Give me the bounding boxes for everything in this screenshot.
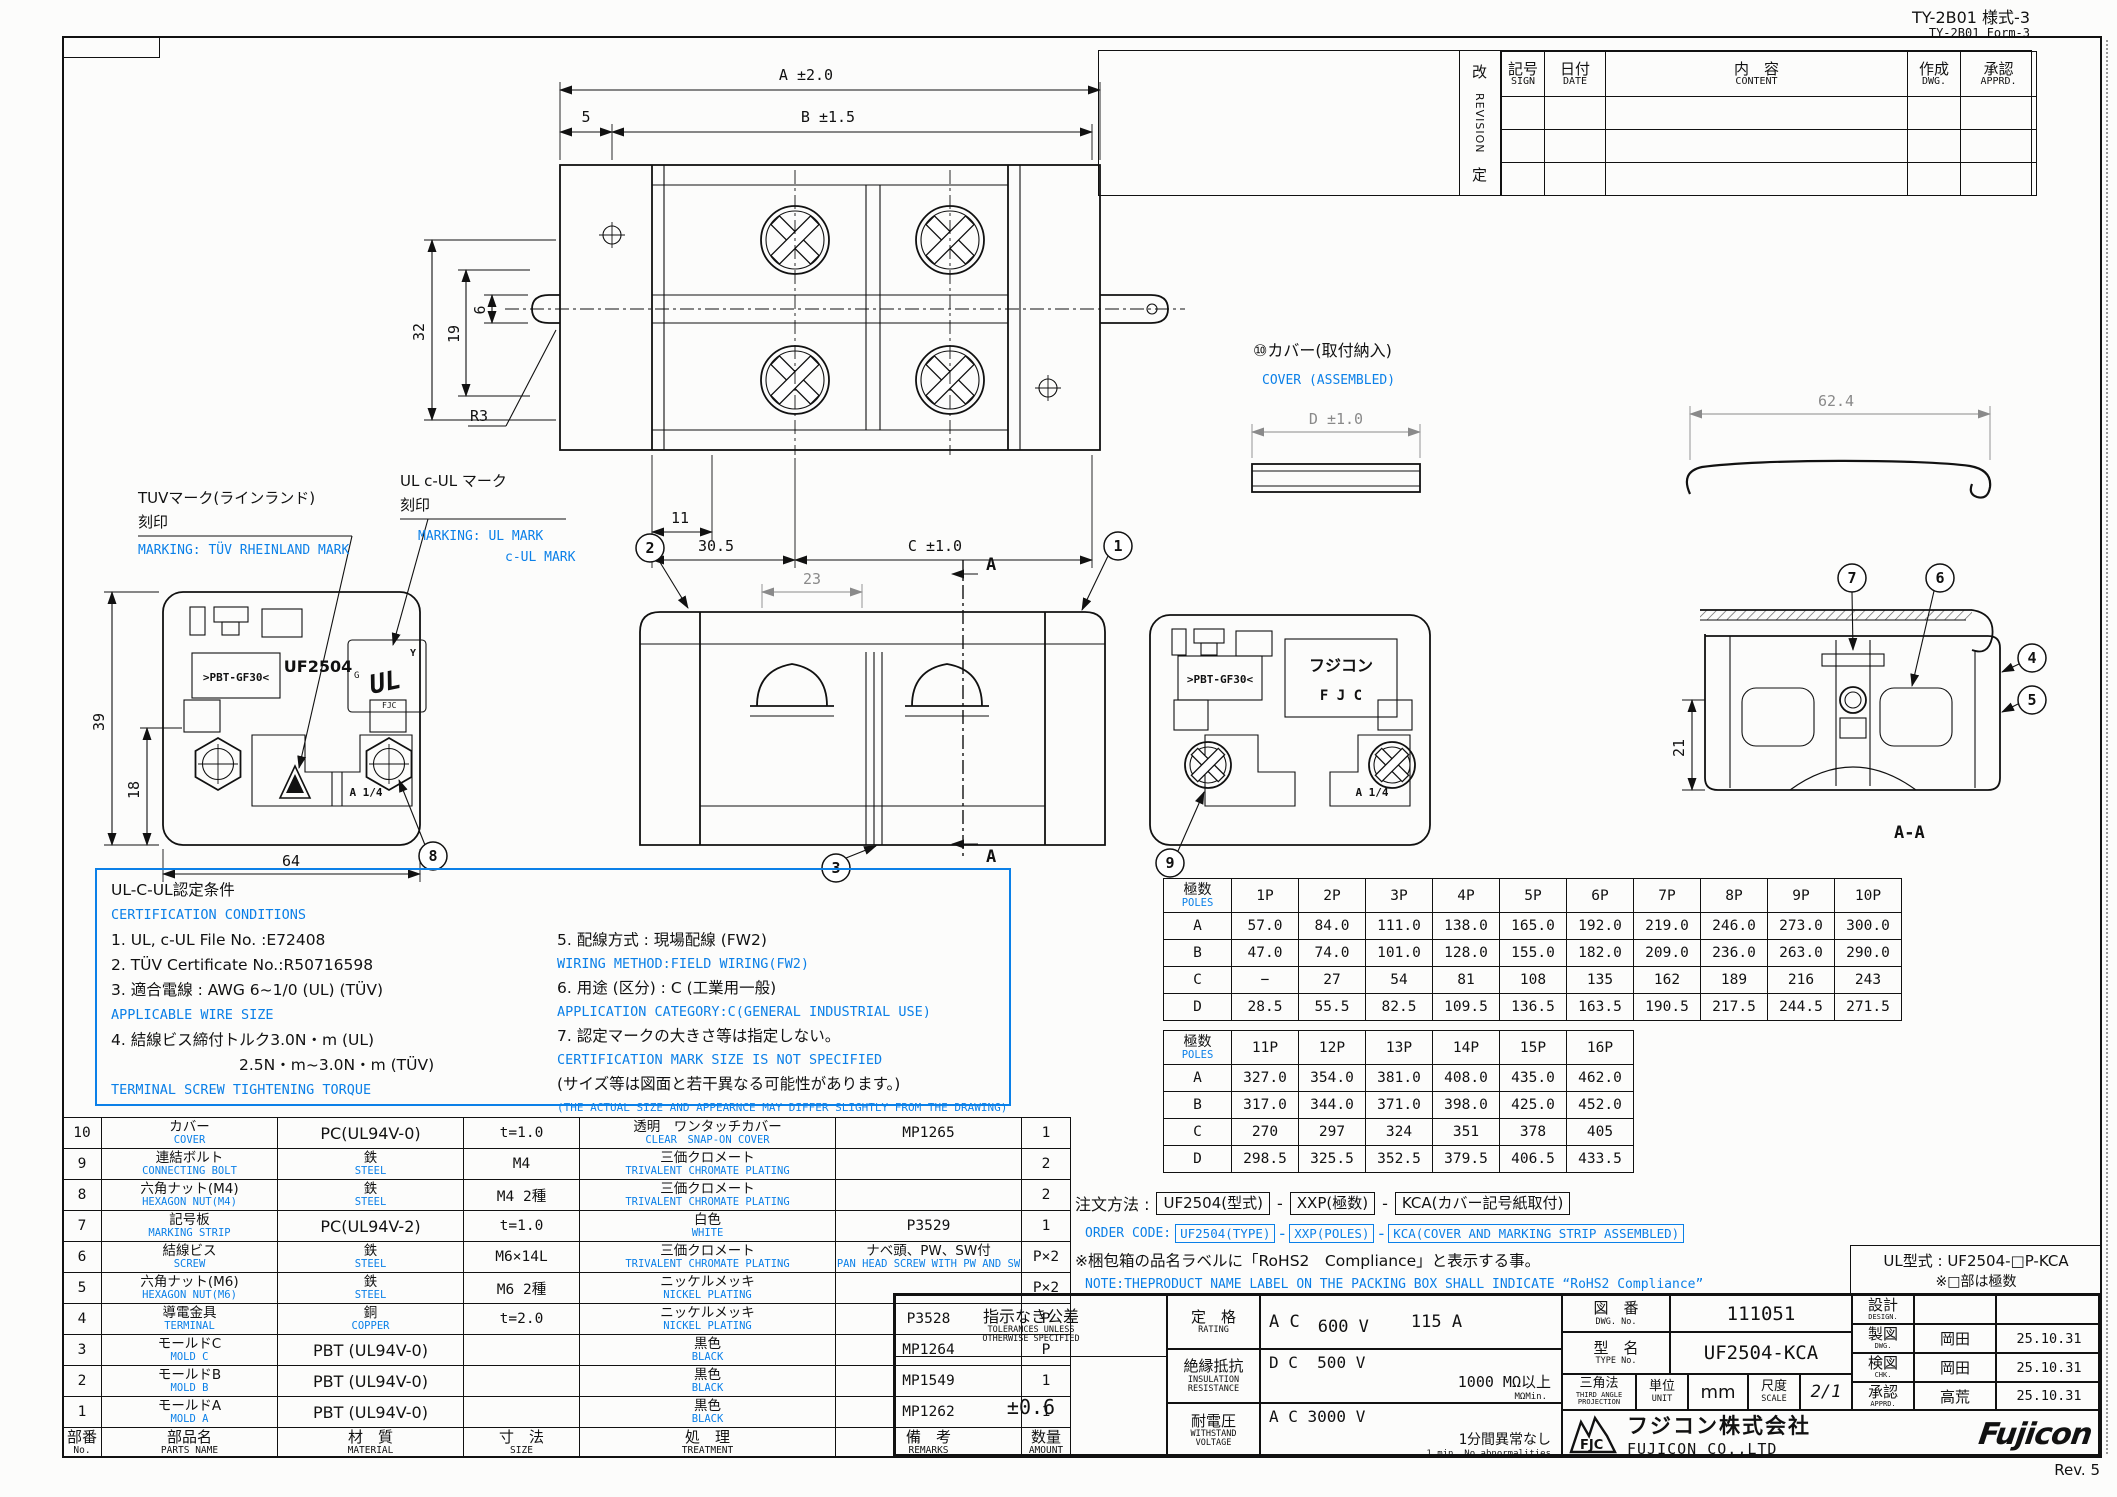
withstand-value: A C 3000 V 1分間異常なし 1 min. No abnormaliti… [1260, 1403, 1562, 1458]
order-box-cover: KCA(カバー記号紙取付) [1395, 1192, 1570, 1215]
cert-line: 2.5N・m~3.0N・m (TÜV) [111, 1053, 434, 1078]
dwgno-value: 111051 [1670, 1295, 1852, 1332]
parts-cell: 導電金具TERMINAL [102, 1304, 278, 1335]
certification-box: UL-C-UL認定条件 CERTIFICATION CONDITIONS1. U… [95, 868, 1011, 1106]
parts-cell: 鉄STEEL [278, 1242, 464, 1273]
cert-line: 1. UL, c-UL File No. :E72408 [111, 928, 434, 953]
balloon-7: 7 [1838, 564, 1866, 650]
parts-header-cell: 部品名PARTS NAME [102, 1428, 278, 1457]
dim-C: C ±1.0 [908, 537, 962, 555]
svg-text:FJC: FJC [382, 701, 397, 710]
sign-row: 製図DWG.岡田25.10.31 [1852, 1324, 2102, 1353]
parts-row: 10カバーCOVERPC(UL94V-0)t=1.0透明 ワンタッチカバーCLE… [63, 1118, 1071, 1149]
svg-text:4: 4 [2027, 649, 2036, 667]
scale-label: 尺度SCALE [1748, 1374, 1800, 1410]
section-label: A-A [1894, 823, 1925, 843]
dim-23: 23 [803, 570, 821, 588]
parts-cell: 6 [63, 1242, 102, 1273]
tuv-label-en: MARKING: TÜV RHEINLAND MARK [138, 541, 349, 558]
parts-cell [464, 1335, 580, 1366]
dwgno-label: 図 番DWG. No. [1562, 1295, 1670, 1332]
parts-header-cell: 材 質MATERIAL [278, 1428, 464, 1457]
title-block: 指示なき公差 TOLERANCES UNLESS OTHERWISE SPECI… [893, 1293, 2100, 1456]
parts-cell: PBT (UL94V-0) [278, 1366, 464, 1397]
dim-19: 19 [445, 325, 463, 343]
company-cell: FJC フジコン株式会社 FUJICON CO.,LTD Fujicon [1562, 1410, 2102, 1458]
parts-cell: MP1265 [836, 1118, 1022, 1149]
order-method-en: ORDER CODE: UF2504(TYPE)- XXP(POLES)- KC… [1085, 1224, 1684, 1243]
parts-cell: M6×14L [464, 1242, 580, 1273]
terminal-dome [750, 664, 834, 716]
mounting-hole [599, 222, 625, 248]
parts-cell: 4 [63, 1304, 102, 1335]
parts-row: 7記号板MARKING STRIPPC(UL94V-2)t=1.0白色WHITE… [63, 1211, 1071, 1242]
poles-col: 16P [1567, 1031, 1634, 1065]
section-arrow-bottom: A [986, 847, 996, 867]
section-view-aa: 21 A-A 7 6 4 5 [1670, 564, 2046, 843]
balloon-5: 5 [2002, 686, 2046, 714]
parts-cell: 8 [63, 1180, 102, 1211]
poles-row: B47.074.0101.0128.0155.0182.0209.0236.02… [1164, 940, 1902, 967]
dim-R3: R3 [470, 407, 488, 425]
parts-cell: 黒色BLACK [580, 1397, 836, 1428]
ul-label-en2: c-UL MARK [505, 550, 576, 565]
parts-cell: 2 [1022, 1149, 1071, 1180]
drawing-sheet: TY-2B01 様式-3 TY-2B01 Form-3 Rev. 5 改 REV… [0, 0, 2117, 1497]
terminal-dome [905, 664, 989, 716]
ul-type-note: ※□部は極数 [1936, 1271, 2017, 1291]
parts-cell [836, 1149, 1022, 1180]
rating-label: 定 格RATING [1167, 1295, 1260, 1349]
typeno-label: 型 名TYPE No. [1562, 1332, 1670, 1374]
poles-row: D298.5325.5352.5379.5406.5433.5 [1164, 1146, 1634, 1173]
parts-cell: M4 2種 [464, 1180, 580, 1211]
rohs-note-en: NOTE:THEPRODUCT NAME LABEL ON THE PACKIN… [1085, 1277, 1703, 1292]
fujicon-brand-logo: Fujicon [1976, 1417, 2093, 1452]
cert-line: CERTIFICATION MARK SIZE IS NOT SPECIFIED [557, 1048, 1007, 1072]
a14-marking: A 1/4 [349, 786, 382, 799]
parts-cell: 透明 ワンタッチカバーCLEAR SNAP-ON COVER [580, 1118, 836, 1149]
rating-value: A C600 V115 A [1260, 1295, 1562, 1349]
cert-right-column: 5. 配線方式 : 現場配線 (FW2)WIRING METHOD:FIELD … [557, 928, 1007, 1120]
tolerance-cell: 指示なき公差 TOLERANCES UNLESS OTHERWISE SPECI… [895, 1295, 1167, 1458]
hex-nut [196, 738, 241, 790]
poles-row: A57.084.0111.0138.0165.0192.0219.0246.02… [1164, 913, 1902, 940]
parts-cell: 5 [63, 1273, 102, 1304]
svg-text:6: 6 [1935, 569, 1944, 587]
cert-line: 6. 用途 (区分) : C (工業用一般) [557, 976, 1007, 1000]
parts-cell: 結線ビスSCREW [102, 1242, 278, 1273]
sign-row: 設計DESIGN. [1852, 1295, 2102, 1324]
poles-col: 10P [1835, 879, 1902, 913]
parts-cell: 白色WHITE [580, 1211, 836, 1242]
company-jp: フジコン株式会社 [1627, 1410, 1811, 1440]
unit-value: mm [1688, 1374, 1748, 1410]
poles-col: 2P [1299, 879, 1366, 913]
dim-32: 32 [410, 323, 428, 341]
poles-row: C270297324351378405 [1164, 1119, 1634, 1146]
section-arrow-top: A [986, 555, 996, 575]
poles-row: D28.555.582.5109.5136.5163.5190.5217.524… [1164, 994, 1902, 1021]
parts-cell: 1 [1022, 1211, 1071, 1242]
insulation-label: 絶縁抵抗INSULATIONRESISTANCE [1167, 1349, 1260, 1403]
parts-cell [836, 1180, 1022, 1211]
parts-header-cell: 寸 法SIZE [464, 1428, 580, 1457]
parts-cell: ニッケルメッキNICKEL PLATING [580, 1304, 836, 1335]
cert-line: (サイズ等は図面と若干異なる可能性があります。) [557, 1072, 1007, 1096]
parts-cell: モールドBMOLD B [102, 1366, 278, 1397]
cert-line: 2. TÜV Certificate No.:R50716598 [111, 953, 434, 978]
order-box-poles: XXP(極数) [1290, 1192, 1375, 1215]
parts-cell: PC(UL94V-2) [278, 1211, 464, 1242]
parts-cell: 1 [63, 1397, 102, 1428]
cert-left-column: CERTIFICATION CONDITIONS1. UL, c-UL File… [111, 903, 434, 1103]
parts-cell: 鉄STEEL [278, 1180, 464, 1211]
cover-label-jp: ⑩カバー(取付納入) [1253, 341, 1392, 360]
parts-row: 8六角ナット(M4)HEXAGON NUT(M4)鉄STEELM4 2種三価クロ… [63, 1180, 1071, 1211]
parts-cell: M6 2種 [464, 1273, 580, 1304]
parts-cell: 記号板MARKING STRIP [102, 1211, 278, 1242]
balloon-2: 2 [636, 534, 688, 608]
poles-col: 11P [1232, 1031, 1299, 1065]
pbt-marking: >PBT-GF30< [203, 671, 270, 684]
sign-table: 設計DESIGN.製図DWG.岡田25.10.31検図CHK.岡田25.10.3… [1852, 1295, 2102, 1410]
parts-row: 6結線ビスSCREW鉄STEELM6×14L三価クロメートTRIVALENT C… [63, 1242, 1071, 1273]
cert-line: 7. 認定マークの大きさ等は指定しない。 [557, 1024, 1007, 1048]
cert-title: UL-C-UL認定条件 [111, 878, 434, 903]
parts-cell: カバーCOVER [102, 1118, 278, 1149]
parts-cell: 連結ボルトCONNECTING BOLT [102, 1149, 278, 1180]
svg-text:UL: UL [367, 665, 404, 701]
parts-cell: PBT (UL94V-0) [278, 1397, 464, 1428]
cover-label-en: COVER (ASSEMBLED) [1262, 373, 1395, 388]
dim-39: 39 [90, 713, 108, 731]
parts-cell: t=1.0 [464, 1118, 580, 1149]
parts-cell: 鉄STEEL [278, 1273, 464, 1304]
parts-cell: 銅COPPER [278, 1304, 464, 1335]
parts-cell: 3 [63, 1335, 102, 1366]
cert-line: TERMINAL SCREW TIGHTENING TORQUE [111, 1078, 434, 1103]
order-method-jp: 注文方法 : UF2504(型式)- XXP(極数)- KCA(カバー記号紙取付… [1075, 1191, 1570, 1215]
parts-cell: 10 [63, 1118, 102, 1149]
balloon-1: 1 [1082, 532, 1132, 610]
balloon-9: 9 [1156, 792, 1204, 877]
parts-cell: P3529 [836, 1211, 1022, 1242]
order-box-type: UF2504(型式) [1156, 1192, 1270, 1215]
poles-table-2: 極数POLES11P12P13P14P15P16PA327.0354.0381.… [1163, 1030, 1634, 1173]
parts-cell: M4 [464, 1149, 580, 1180]
poles-row: A327.0354.0381.0408.0435.0462.0 [1164, 1065, 1634, 1092]
mounting-hole [1035, 375, 1061, 401]
cover-profile-view: 62.4 [1687, 392, 1990, 498]
parts-cell: P×2 [1022, 1242, 1071, 1273]
parts-cell: PBT (UL94V-0) [278, 1335, 464, 1366]
balloon-4: 4 [2002, 644, 2046, 672]
dim-18: 18 [125, 781, 143, 799]
parts-cell: 9 [63, 1149, 102, 1180]
parts-cell [464, 1397, 580, 1428]
svg-text:G: G [354, 671, 359, 681]
parts-cell: モールドAMOLD A [102, 1397, 278, 1428]
front-view-marking: >PBT-GF30< UF2504 UL G Y FJC A 1/4 [90, 472, 576, 882]
dim-11: 11 [671, 509, 689, 527]
parts-cell: t=1.0 [464, 1211, 580, 1242]
tuv-label-jp1: TUVマーク(ラインランド) [137, 489, 315, 507]
poles-col: 8P [1701, 879, 1768, 913]
hex-nut [367, 738, 412, 790]
parts-cell: ナベ頭、PW、SW付PAN HEAD SCREW WITH PW AND SW [836, 1242, 1022, 1273]
parts-cell: 黒色BLACK [580, 1366, 836, 1397]
a14-marking: A 1/4 [1355, 786, 1388, 799]
parts-cell: 黒色BLACK [580, 1335, 836, 1366]
svg-text:7: 7 [1847, 569, 1856, 587]
poles-col: 3P [1366, 879, 1433, 913]
poles-header: 極数POLES [1164, 879, 1232, 913]
cert-line: APPLICATION CATEGORY:C(GENERAL INDUSTRIA… [557, 1000, 1007, 1024]
parts-cell: 1 [1022, 1118, 1071, 1149]
svg-text:5: 5 [2027, 691, 2036, 709]
cert-line: 5. 配線方式 : 現場配線 (FW2) [557, 928, 1007, 952]
withstand-label: 耐電圧WITHSTANDVOLTAGE [1167, 1403, 1260, 1458]
insulation-value: D C 500 V 1000 MΩ以上 MΩMin. [1260, 1349, 1562, 1403]
poles-col: 14P [1433, 1031, 1500, 1065]
cover-side-view: D ±1.0 [1252, 410, 1420, 492]
type-marking: UF2504 [284, 657, 352, 676]
cert-line: 3. 適合電線 : AWG 6~1/0 (UL) (TÜV) [111, 978, 434, 1003]
parts-cell: 三価クロメートTRIVALENT CHROMATE PLATING [580, 1149, 836, 1180]
ul-label-jp2: 刻印 [400, 496, 430, 514]
tolerance-value: ±0.6 [896, 1357, 1166, 1457]
poles-col: 4P [1433, 879, 1500, 913]
parts-cell: 三価クロメートTRIVALENT CHROMATE PLATING [580, 1242, 836, 1273]
dim-A: A ±2.0 [779, 66, 833, 84]
parts-cell: 7 [63, 1211, 102, 1242]
parts-cell: 2 [1022, 1180, 1071, 1211]
company-en: FUJICON CO.,LTD [1627, 1440, 1811, 1458]
sign-row: 検図CHK.岡田25.10.31 [1852, 1353, 2102, 1382]
poles-table-1: 極数POLES1P2P3P4P5P6P7P8P9P10PA57.084.0111… [1163, 878, 1902, 1021]
parts-cell: 2 [63, 1366, 102, 1397]
poles-col: 12P [1299, 1031, 1366, 1065]
poles-col: 1P [1232, 879, 1299, 913]
parts-cell: t=2.0 [464, 1304, 580, 1335]
projection-cell: 三角法THIRD ANGLEPROJECTION [1562, 1374, 1636, 1410]
dim-21: 21 [1670, 739, 1688, 757]
parts-cell [464, 1366, 580, 1397]
parts-cell: モールドCMOLD C [102, 1335, 278, 1366]
parts-header-cell: 処 理TREATMENT [580, 1428, 836, 1457]
poles-col: 7P [1634, 879, 1701, 913]
poles-row: C−275481108135162189216243 [1164, 967, 1902, 994]
dim-B: B ±1.5 [801, 108, 855, 126]
dim-62-4: 62.4 [1818, 392, 1854, 410]
pbt-marking: >PBT-GF30< [1187, 673, 1254, 686]
svg-text:8: 8 [428, 847, 437, 865]
cross-screw [1369, 742, 1415, 788]
sign-row: 承認APPRD.高荒25.10.31 [1852, 1382, 2102, 1410]
ul-label-jp1: UL c-UL マーク [400, 472, 507, 490]
parts-cell: ニッケルメッキNICKEL PLATING [580, 1273, 836, 1304]
parts-header-cell: 部番No. [63, 1428, 102, 1457]
parts-cell: PC(UL94V-0) [278, 1118, 464, 1149]
cert-line: APPLICABLE WIRE SIZE [111, 1003, 434, 1028]
ul-mark: UL G Y FJC [348, 640, 426, 712]
typeno-value: UF2504-KCA [1670, 1332, 1852, 1374]
parts-cell: 六角ナット(M4)HEXAGON NUT(M4) [102, 1180, 278, 1211]
parts-cell: 三価クロメートTRIVALENT CHROMATE PLATING [580, 1180, 836, 1211]
ul-label-en1: MARKING: UL MARK [418, 529, 543, 544]
ul-type-box: UL型式 : UF2504-□P-KCA ※□部は極数 [1850, 1245, 2102, 1295]
parts-cell: 六角ナット(M6)HEXAGON NUT(M6) [102, 1273, 278, 1304]
unit-label: 単位UNIT [1636, 1374, 1688, 1410]
svg-text:FJC: FJC [1580, 1438, 1603, 1453]
parts-row: 9連結ボルトCONNECTING BOLT鉄STEELM4三価クロメートTRIV… [63, 1149, 1071, 1180]
cert-line: WIRING METHOD:FIELD WIRING(FW2) [557, 952, 1007, 976]
svg-text:Y: Y [410, 648, 416, 659]
svg-text:2: 2 [645, 539, 654, 557]
brand-marking-jp: フジコン [1309, 656, 1373, 675]
rohs-note-jp: ※梱包箱の品名ラベルに「RoHS2 Compliance」と表示する事。 [1075, 1249, 1540, 1271]
front-view-center: A A 2 1 3 23 [636, 532, 1132, 882]
poles-col: 15P [1500, 1031, 1567, 1065]
poles-col: 6P [1567, 879, 1634, 913]
poles-col: 9P [1768, 879, 1835, 913]
cross-screw [1185, 742, 1231, 788]
scale-value: 2/1 [1800, 1374, 1852, 1410]
tuv-label-jp2: 刻印 [138, 513, 168, 531]
poles-col: 13P [1366, 1031, 1433, 1065]
poles-header: 極数POLES [1164, 1031, 1232, 1065]
dim-30-5: 30.5 [698, 537, 734, 555]
svg-text:1: 1 [1113, 537, 1122, 555]
front-view-fujicon: >PBT-GF30< フジコン F J C A 1/4 9 [1150, 615, 1430, 877]
parts-cell: 鉄STEEL [278, 1149, 464, 1180]
poles-row: B317.0344.0371.0398.0425.0452.0 [1164, 1092, 1634, 1119]
dim-D: D ±1.0 [1309, 410, 1363, 428]
poles-col: 5P [1500, 879, 1567, 913]
dim-5: 5 [581, 108, 590, 126]
fjc-logo: FJC [1567, 1412, 1619, 1456]
balloon-8: 8 [399, 780, 447, 870]
cert-line: CERTIFICATION CONDITIONS [111, 903, 434, 928]
brand-marking-en: F J C [1320, 688, 1362, 704]
dim-6: 6 [471, 305, 489, 314]
ul-type: UL型式 : UF2504-□P-KCA [1883, 1250, 2068, 1271]
plan-view: A ±2.0 B ±1.5 5 32 19 6 R3 11 30.5 C ±1.… [410, 66, 1185, 568]
svg-text:9: 9 [1165, 854, 1174, 872]
cert-line: 4. 結線ビス締付トルク3.0N・m (UL) [111, 1028, 434, 1053]
balloon-6: 6 [1912, 564, 1954, 686]
